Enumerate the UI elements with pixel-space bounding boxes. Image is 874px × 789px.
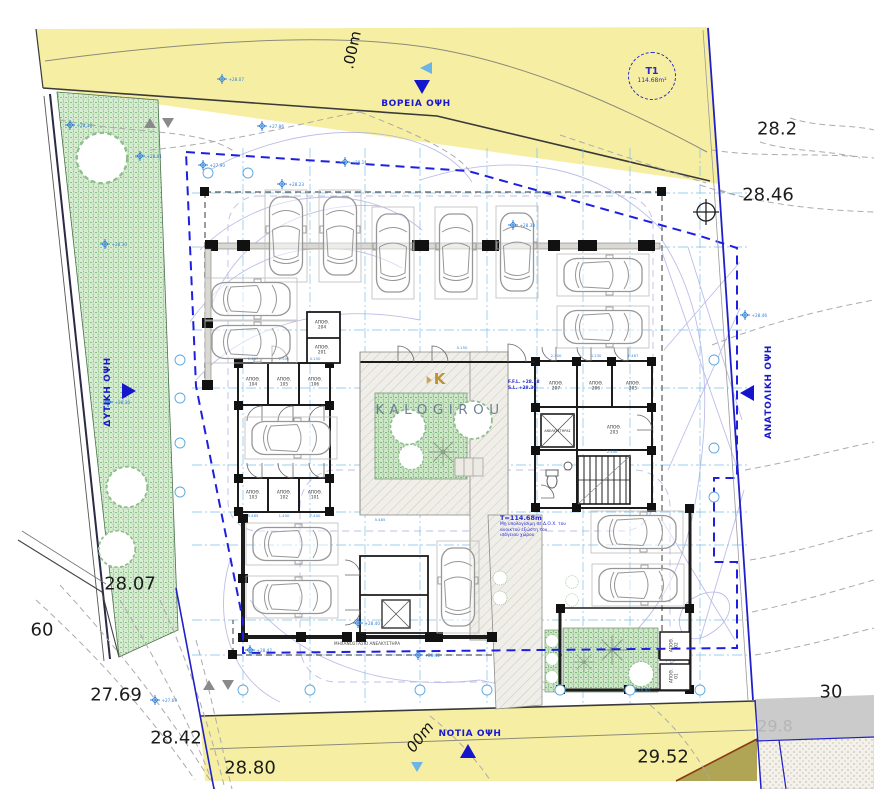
spot-elevation-value: +27.69 <box>162 698 178 703</box>
tree-symbol <box>566 576 579 589</box>
spot-elevation-value: +28.07 <box>229 77 245 82</box>
car-symbol <box>598 512 676 552</box>
car-symbol <box>266 197 306 275</box>
grid-bubble <box>203 168 213 178</box>
room-label: ΑΠΟΘ.201 <box>315 346 329 357</box>
room-label: ΑΠΟΘ.01 <box>670 669 681 683</box>
tree-symbol <box>493 591 507 605</box>
spot-elevation-value: +28.38 <box>520 223 536 228</box>
wc-fixtures <box>546 462 572 488</box>
spot-elevation-value: +28.46 <box>752 313 768 318</box>
spot-elevation-value: +28.11 <box>352 160 368 165</box>
car-symbol <box>253 524 331 564</box>
hatched-plot-corner <box>757 737 874 789</box>
tree-symbol <box>546 671 559 684</box>
grid-bubble <box>175 393 185 403</box>
grid-bubble <box>482 685 492 695</box>
car-symbol <box>252 418 330 458</box>
grid-bubble <box>175 355 185 365</box>
spot-elevation: +28.46 <box>740 310 767 320</box>
tree-symbol <box>107 467 148 508</box>
palm-symbol <box>574 652 595 673</box>
car-symbol <box>212 279 290 319</box>
tree-symbol <box>398 444 423 469</box>
grid-bubble <box>175 438 185 448</box>
dimension-text: 2.500 <box>279 356 290 361</box>
spot-elevation-value: +27.86 <box>269 124 285 129</box>
grid-bubble <box>695 685 705 695</box>
spot-elevation: +28.11 <box>340 157 367 167</box>
palm-symbol <box>429 438 457 466</box>
spot-elevation-value: +28.80 <box>635 688 651 693</box>
room-label: ΑΠΟΘ.103 <box>246 491 260 502</box>
car-symbol <box>436 214 476 292</box>
tree-symbol <box>99 531 135 567</box>
finished-floor-level-note: F.F.L. +28.38 S.L. +28.30 <box>508 380 540 392</box>
dimension-text: 5.485 <box>375 517 386 522</box>
grid-bubble <box>243 168 253 178</box>
room-label: ΑΠΟΘ.101 <box>308 491 322 502</box>
area-note-title: T=114.68m <box>500 514 566 522</box>
elevation-ne-upper: 28.2 <box>757 119 797 140</box>
car-symbol <box>373 214 413 292</box>
staircase <box>578 456 630 504</box>
dimension-text: 2.300 <box>551 353 562 358</box>
car-symbol <box>320 197 360 275</box>
west-facade-label: ΔΥΤΙΚΗ ΟΨΗ <box>103 357 113 426</box>
grid-bubble <box>555 685 565 695</box>
spot-elevation: +27.69 <box>150 695 177 705</box>
grid-bubble <box>175 487 185 497</box>
elevation-south-right: 29.52 <box>637 747 689 768</box>
car-symbol <box>564 307 642 347</box>
dimension-text: 5.485 <box>248 513 259 518</box>
spot-elevation-value: +28.42 <box>257 648 273 653</box>
spot-elevation: +28.23 <box>277 179 304 189</box>
dimension-text: 7.400 <box>310 513 321 518</box>
dimension-text: 1.487 <box>248 356 259 361</box>
site-plan-drawing: +28.38+28.01+28.07+27.86+28.11+27.90+28.… <box>0 0 874 789</box>
grid-bubble <box>709 443 719 453</box>
grid-bubble <box>238 685 248 695</box>
tree-symbol <box>493 571 507 585</box>
south-road-band <box>200 695 874 789</box>
brand-monogram: K <box>427 370 446 388</box>
spot-elevation-value: +28.42 <box>425 653 441 658</box>
elevation-southeast: 30 <box>820 682 843 703</box>
car-symbol <box>438 548 478 626</box>
room-label: ΑΠΟΘ.104 <box>246 378 260 389</box>
room-label: ΑΠΟΘ.02 <box>670 638 681 652</box>
room-label: ΑΠΟΘ.102 <box>277 491 291 502</box>
spot-elevation-value: +27.90 <box>210 163 226 168</box>
elevation-southwest: 28.42 <box>150 728 202 749</box>
spot-elevation-value: +28.30 <box>112 242 128 247</box>
tree-symbol <box>546 653 559 666</box>
tree-symbol <box>628 661 653 686</box>
spot-elevation-value: +28.38 <box>77 123 93 128</box>
dimension-text: 0.150 <box>457 345 468 350</box>
car-symbol <box>253 577 331 617</box>
south-facade-label: ΝΟΤΙΑ ΟΨΗ <box>439 729 502 739</box>
elevation-southwest-upper: 27.69 <box>90 685 142 706</box>
grid-bubble <box>709 492 719 502</box>
elevation-ne-corner: 28.46 <box>742 185 794 206</box>
spot-elevation-value: +28.40 <box>365 621 381 626</box>
room-label: ΑΠΟΘ.206 <box>589 382 603 393</box>
grid-bubble <box>625 685 635 695</box>
car-symbol <box>599 565 677 605</box>
spot-elevation: +27.86 <box>257 121 284 131</box>
room-label: ΑΠΟΘ.204 <box>315 321 329 332</box>
tree-symbol <box>566 594 579 607</box>
spot-elevation: +27.90 <box>198 160 225 170</box>
plot-area: 114.68m² <box>637 77 666 85</box>
grid-bubble <box>305 685 315 695</box>
elevation-west-strip: 28.07 <box>104 574 156 595</box>
elevation-south-left: 28.80 <box>224 758 276 779</box>
dimension-text: 1.400 <box>279 513 290 518</box>
elevation-southeast-gray: 29.8 <box>757 717 793 736</box>
room-label: ΑΠΟΘ.105 <box>277 378 291 389</box>
dimension-text: 1.487 <box>628 353 639 358</box>
tree-symbol <box>546 635 559 648</box>
plot-id: T1 <box>645 67 658 77</box>
dimension-text: 2.500 <box>607 449 618 454</box>
grid-bubble <box>709 355 719 365</box>
room-label: ΑΠΟΘ.203 <box>607 426 621 437</box>
plot-badge: T1 114.68m² <box>628 52 676 100</box>
site-plan-page: +28.38+28.01+28.07+27.86+28.11+27.90+28.… <box>0 0 874 789</box>
spot-elevation-value: +28.23 <box>289 182 305 187</box>
dimension-text: 0.150 <box>310 356 321 361</box>
machine-room-note: ΜΗΧΑΝΟΣΤΑΣΙΟ ΑΝΕΛΚΥΣΤΗΡΑ <box>334 641 420 646</box>
room-label: ΑΠΟΘ.205 <box>626 382 640 393</box>
spot-elevation-value: +28.30 <box>115 400 131 405</box>
spot-elevation-value: +28.01 <box>147 154 163 159</box>
north-facade-label: ΒΟΡΕΙΑ ΟΨΗ <box>381 99 451 109</box>
tree-symbol <box>77 133 127 183</box>
elevator-label: ΑΝΕΛΚΥΣΤΗΡΑΣ <box>544 429 570 433</box>
east-facade-triangle <box>740 385 754 401</box>
room-label: ΑΠΟΘ.207 <box>549 382 563 393</box>
car-symbol <box>564 255 642 295</box>
east-facade-label: ΑΝΑΤΟΛΙΚΗ ΟΨΗ <box>764 345 774 439</box>
elevator-pit <box>382 600 410 628</box>
area-note: T=114.68m Μη υπολογίσιμη σε Δ.Ο.Χ. του α… <box>500 514 566 539</box>
dimension-text: 0.230 <box>591 353 602 358</box>
room-label: ΑΠΟΘ.106 <box>308 378 322 389</box>
grid-bubble <box>415 685 425 695</box>
brand-watermark: KALOGIROU <box>375 402 504 418</box>
elevation-far-left: 60 <box>31 620 54 641</box>
